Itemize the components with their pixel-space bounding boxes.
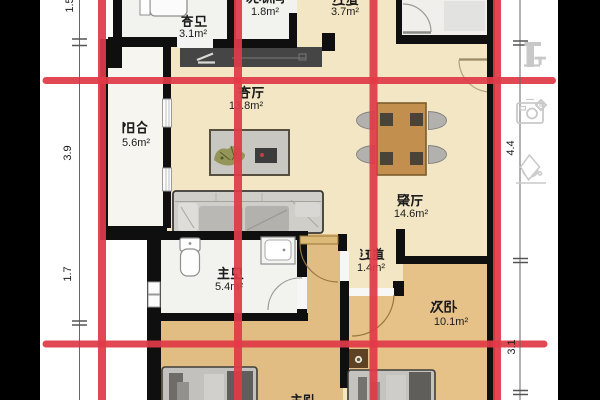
svg-text:3.1m²: 3.1m² xyxy=(179,28,207,40)
svg-text:3.7m²: 3.7m² xyxy=(331,6,359,18)
svg-text:4.4: 4.4 xyxy=(505,140,517,155)
svg-text:3.9: 3.9 xyxy=(62,145,74,160)
svg-text:1.8m²: 1.8m² xyxy=(251,6,279,18)
svg-text:1.5: 1.5 xyxy=(64,0,76,13)
svg-text:14.6m²: 14.6m² xyxy=(394,208,429,220)
svg-text:10.1m²: 10.1m² xyxy=(434,316,469,328)
svg-text:5.6m²: 5.6m² xyxy=(122,137,150,149)
svg-text:3.1: 3.1 xyxy=(506,339,518,354)
svg-text:1.7: 1.7 xyxy=(62,266,74,281)
